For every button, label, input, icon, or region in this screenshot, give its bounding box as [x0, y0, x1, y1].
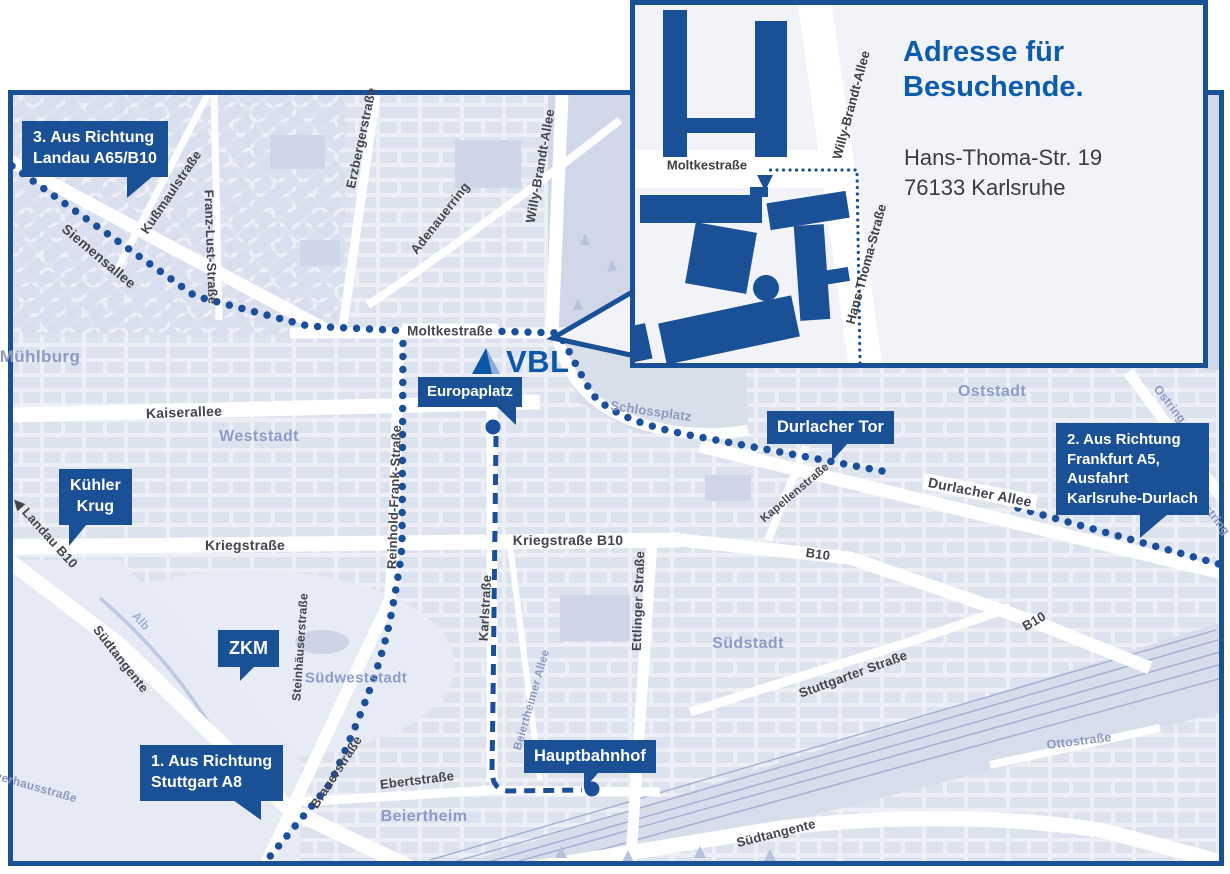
callout-line: 1. Aus Richtung: [151, 752, 272, 773]
callout-line: Karlsruhe-Durlach: [1067, 489, 1198, 509]
callout-pointer: [127, 176, 153, 198]
callout-line: ZKM: [229, 637, 268, 660]
district-label: Südweststadt: [305, 670, 407, 687]
callout-pointer: [233, 800, 261, 820]
callout-pointer: [240, 666, 255, 681]
callout-kuehler-krug: Kühler Krug: [59, 469, 132, 525]
callout-hauptbahnhof: Hauptbahnhof: [524, 740, 656, 773]
callout-line: Durlacher Tor: [777, 417, 884, 438]
callout-pointer: [584, 772, 599, 789]
callout-line: Frankfurt A5,: [1067, 450, 1198, 470]
district-label: Mühlburg: [0, 347, 80, 367]
district-label: Südstadt: [712, 635, 784, 653]
callout-route2: 2. Aus Richtung Frankfurt A5, Ausfahrt K…: [1056, 423, 1209, 515]
callout-line: 3. Aus Richtung: [33, 128, 157, 149]
callout-pointer: [1140, 514, 1168, 538]
callout-line: Krug: [70, 497, 121, 518]
callout-route3: 3. Aus Richtung Landau A65/B10: [22, 121, 168, 177]
callout-line: 2. Aus Richtung: [1067, 430, 1198, 450]
callout-line: Landau A65/B10: [33, 149, 157, 170]
district-label: Oststadt: [958, 383, 1026, 401]
street-label: Kaiserallee: [146, 403, 223, 422]
inset-title: Adresse für Besuchende.: [903, 35, 1084, 106]
street-label: Kriegstraße: [205, 537, 285, 553]
district-label: Weststadt: [219, 428, 299, 446]
inset-address: Hans-Thoma-Str. 19 76133 Karlsruhe: [904, 143, 1102, 203]
callout-pointer: [496, 406, 516, 425]
callout-zkm: ZKM: [218, 630, 279, 667]
vbl-logo: VBL: [470, 345, 570, 377]
vbl-pyramid-icon: [470, 345, 502, 377]
street-label: Kriegstraße B10: [513, 532, 623, 548]
inset-panel: Moltkestraße Willy-Brandt-Allee Hans-Tho…: [630, 0, 1208, 368]
callout-line: Stuttgart A8: [151, 773, 272, 794]
callout-line: Hauptbahnhof: [534, 746, 646, 767]
street-label: B10: [805, 545, 831, 563]
callout-line: Ausfahrt: [1067, 469, 1198, 489]
district-label: Beiertheim: [381, 808, 468, 826]
callout-pointer: [832, 443, 848, 461]
callout-europaplatz: Europaplatz: [418, 377, 522, 407]
map-page: Siemensallee Kußmaulstraße Franz-Lust-St…: [0, 0, 1230, 874]
callout-line: Kühler: [70, 476, 121, 497]
vbl-logo-text: VBL: [506, 346, 570, 377]
inset-title-line: Besuchende.: [903, 70, 1084, 105]
callout-pointer: [69, 524, 87, 546]
callout-line: Europaplatz: [427, 382, 513, 402]
inset-address-line: 76133 Karlsruhe: [904, 173, 1102, 203]
callout-route1: 1. Aus Richtung Stuttgart A8: [140, 745, 283, 801]
inset-title-line: Adresse für: [903, 35, 1084, 70]
street-label: Moltkestraße: [402, 324, 498, 339]
callout-durlacher-tor: Durlacher Tor: [767, 411, 894, 444]
inset-street-label: Moltkestraße: [667, 158, 747, 173]
inset-address-line: Hans-Thoma-Str. 19: [904, 143, 1102, 173]
